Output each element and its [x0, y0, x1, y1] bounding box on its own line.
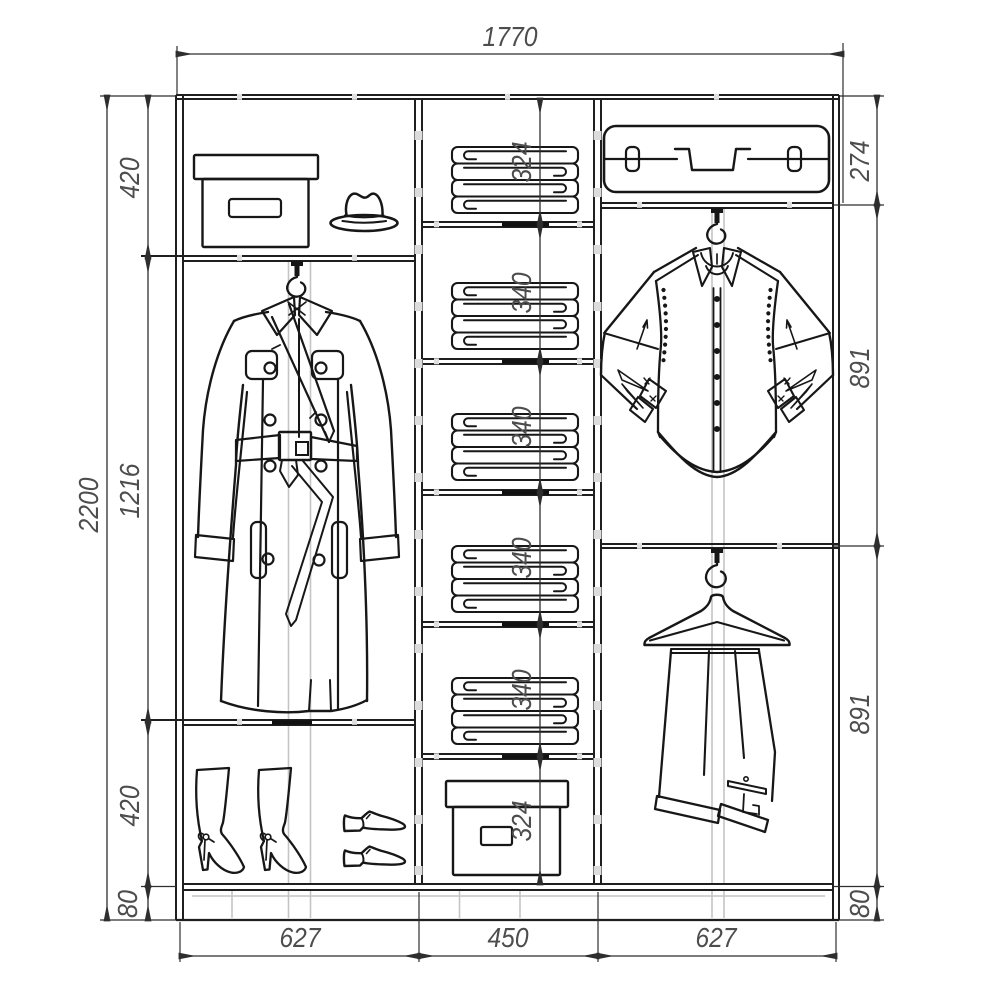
- svg-text:450: 450: [488, 922, 529, 953]
- svg-text:891: 891: [844, 348, 875, 389]
- svg-text:340: 340: [506, 537, 537, 578]
- svg-text:340: 340: [506, 272, 537, 313]
- svg-text:627: 627: [280, 922, 322, 953]
- svg-text:2200: 2200: [73, 477, 104, 533]
- svg-text:80: 80: [844, 890, 875, 918]
- svg-text:324: 324: [506, 142, 537, 183]
- svg-text:420: 420: [114, 785, 145, 826]
- svg-text:340: 340: [506, 669, 537, 710]
- svg-text:1216: 1216: [114, 463, 145, 518]
- svg-text:420: 420: [114, 157, 145, 198]
- svg-text:80: 80: [112, 890, 143, 918]
- svg-text:274: 274: [844, 141, 875, 183]
- svg-text:627: 627: [696, 922, 738, 953]
- svg-text:340: 340: [506, 406, 537, 447]
- svg-text:891: 891: [844, 694, 875, 735]
- svg-text:324: 324: [506, 801, 537, 842]
- svg-text:1770: 1770: [483, 21, 538, 52]
